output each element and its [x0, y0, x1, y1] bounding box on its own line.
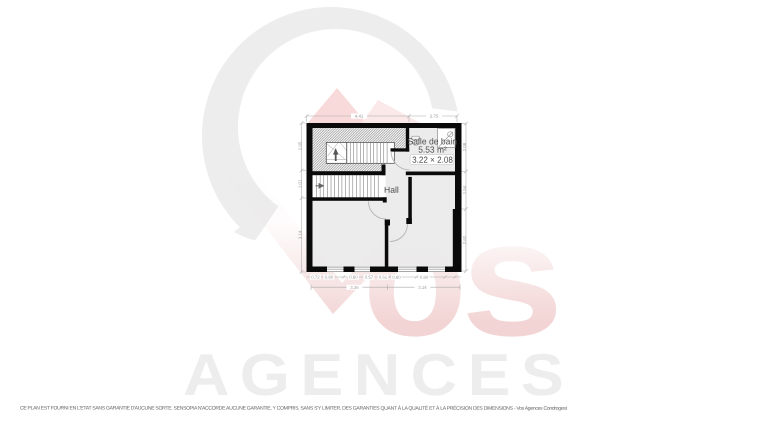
svg-text:0.80: 0.80: [420, 275, 429, 280]
svg-text:2.75: 2.75: [430, 114, 439, 119]
svg-text:2.05: 2.05: [298, 141, 303, 150]
svg-text:0.61: 0.61: [379, 275, 388, 280]
svg-text:0.57: 0.57: [365, 275, 374, 280]
svg-text:1.01: 1.01: [298, 179, 303, 188]
svg-text:CE PLAN EST FOURNI EN L'ETAT S: CE PLAN EST FOURNI EN L'ETAT SANS GARANT…: [20, 405, 568, 412]
svg-text:0.80: 0.80: [349, 275, 358, 280]
svg-text:0.80: 0.80: [392, 275, 401, 280]
svg-text:1.54: 1.54: [462, 185, 467, 194]
svg-text:AGENCES: AGENCES: [183, 342, 574, 408]
svg-text:3.36: 3.36: [350, 285, 359, 290]
svg-text:0.72: 0.72: [311, 275, 320, 280]
svg-text:5.53 m²: 5.53 m²: [418, 145, 447, 155]
svg-text:Hall: Hall: [384, 185, 399, 195]
svg-text:3.14: 3.14: [297, 230, 302, 239]
svg-text:0.80: 0.80: [325, 275, 334, 280]
svg-text:3.14: 3.14: [418, 285, 427, 290]
svg-text:2.62: 2.62: [462, 235, 467, 244]
svg-text:3.22 × 2.08: 3.22 × 2.08: [412, 155, 453, 165]
svg-text:4.41: 4.41: [355, 114, 364, 119]
svg-text:2.08: 2.08: [462, 142, 467, 151]
